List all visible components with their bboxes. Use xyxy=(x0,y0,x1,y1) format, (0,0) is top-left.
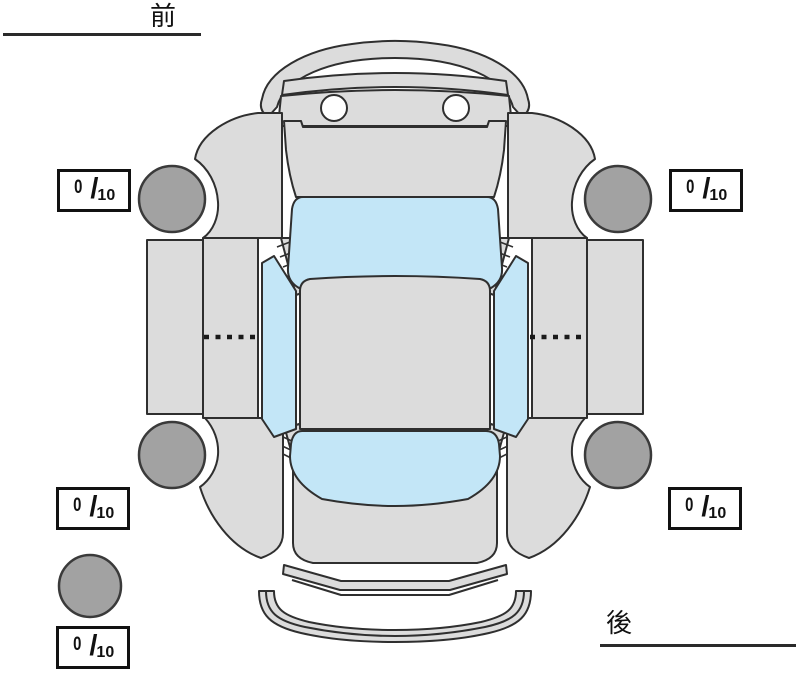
tire-rear-left-icon xyxy=(139,422,205,488)
tread-max: 10 xyxy=(96,505,114,523)
door-panel-right xyxy=(532,238,587,418)
tread-max: 10 xyxy=(709,187,727,205)
door-outer-strip-left xyxy=(147,240,203,414)
rear-section xyxy=(259,431,531,642)
tread-box-front-left: 0 / 10 xyxy=(57,169,131,212)
front-fender-left xyxy=(195,113,282,238)
tread-max: 10 xyxy=(97,187,115,205)
tire-front-left-icon xyxy=(139,166,205,232)
windshield-glass xyxy=(288,197,502,288)
tread-box-spare: 0 / 10 xyxy=(56,626,130,669)
roof-panel xyxy=(300,276,490,429)
tread-box-front-right: 0 / 10 xyxy=(669,169,743,212)
tread-box-rear-left: 0 / 10 xyxy=(56,487,130,530)
front-fender-right xyxy=(508,113,595,238)
vehicle-inspection-diagram: 前 後 xyxy=(0,0,800,675)
headlamp-left-icon xyxy=(321,95,347,121)
door-outer-strip-right xyxy=(587,240,643,414)
tread-max: 10 xyxy=(96,644,114,662)
rear-window-glass xyxy=(290,431,500,506)
tread-max: 10 xyxy=(708,505,726,523)
tread-value: 0 xyxy=(73,634,81,656)
rear-quarter-right xyxy=(507,418,590,558)
spare-tire-icon xyxy=(59,555,121,617)
tire-rear-right-icon xyxy=(585,422,651,488)
tread-value: 0 xyxy=(74,177,82,199)
trunk-edge-band xyxy=(283,565,507,590)
tread-value: 0 xyxy=(73,495,81,517)
tread-box-rear-right: 0 / 10 xyxy=(668,487,742,530)
rear-bumper-shape xyxy=(259,591,531,642)
headlamp-right-icon xyxy=(443,95,469,121)
door-panel-left xyxy=(203,238,258,418)
front-section xyxy=(261,41,529,197)
tire-front-right-icon xyxy=(585,166,651,232)
front-panel-shape xyxy=(278,90,512,126)
side-glass-right xyxy=(494,256,528,437)
tread-value: 0 xyxy=(685,495,693,517)
car-unfolded-diagram xyxy=(0,0,800,675)
hood-shape xyxy=(284,121,506,197)
side-glass-left xyxy=(262,256,296,437)
tread-value: 0 xyxy=(686,177,694,199)
rear-quarter-left xyxy=(200,418,283,558)
